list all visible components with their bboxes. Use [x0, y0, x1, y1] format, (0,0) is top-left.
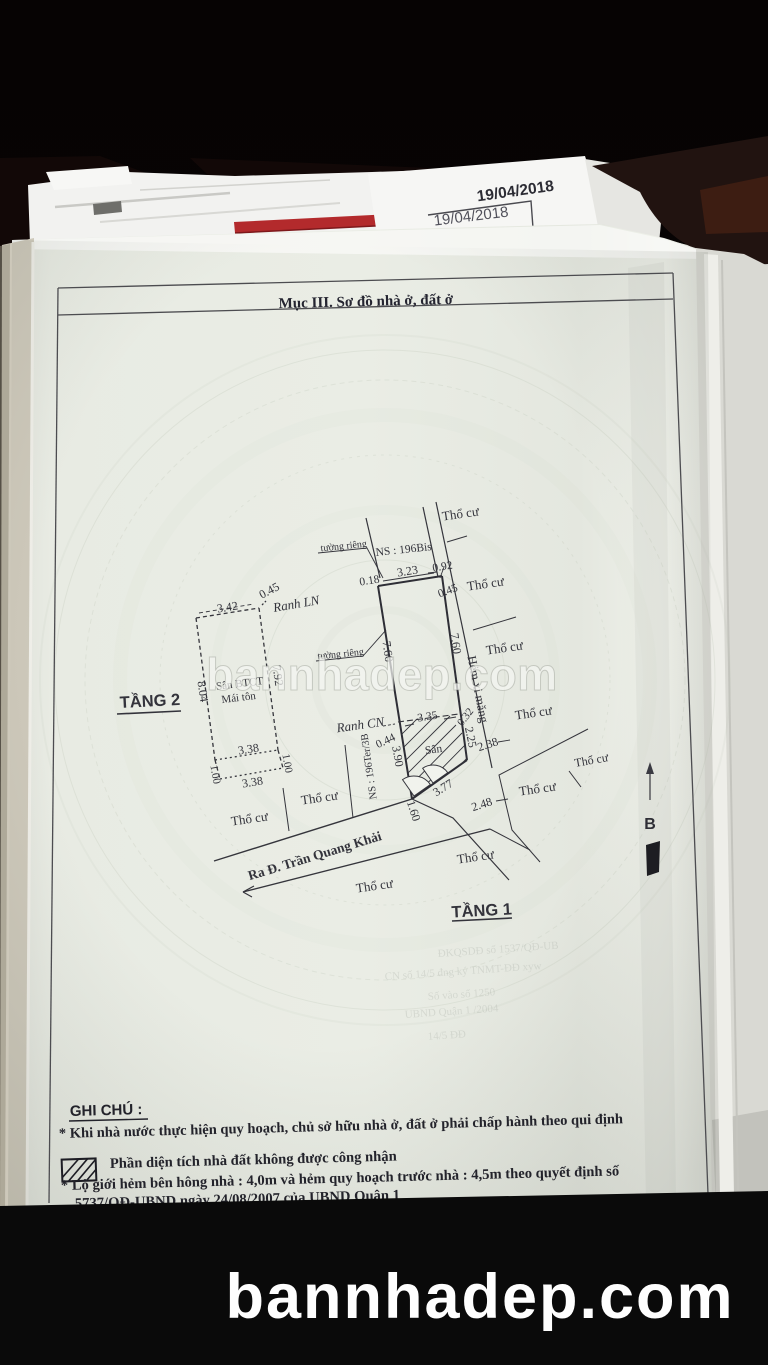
- svg-text:GHI CHÚ :: GHI CHÚ :: [70, 1100, 143, 1120]
- svg-text:bannhadep.com: bannhadep.com: [225, 1262, 734, 1332]
- svg-text:Sân: Sân: [424, 743, 443, 757]
- svg-text:bannhadep.com: bannhadep.com: [206, 649, 558, 700]
- svg-text:TẦNG 2: TẦNG 2: [119, 690, 180, 712]
- svg-text:B: B: [644, 816, 656, 833]
